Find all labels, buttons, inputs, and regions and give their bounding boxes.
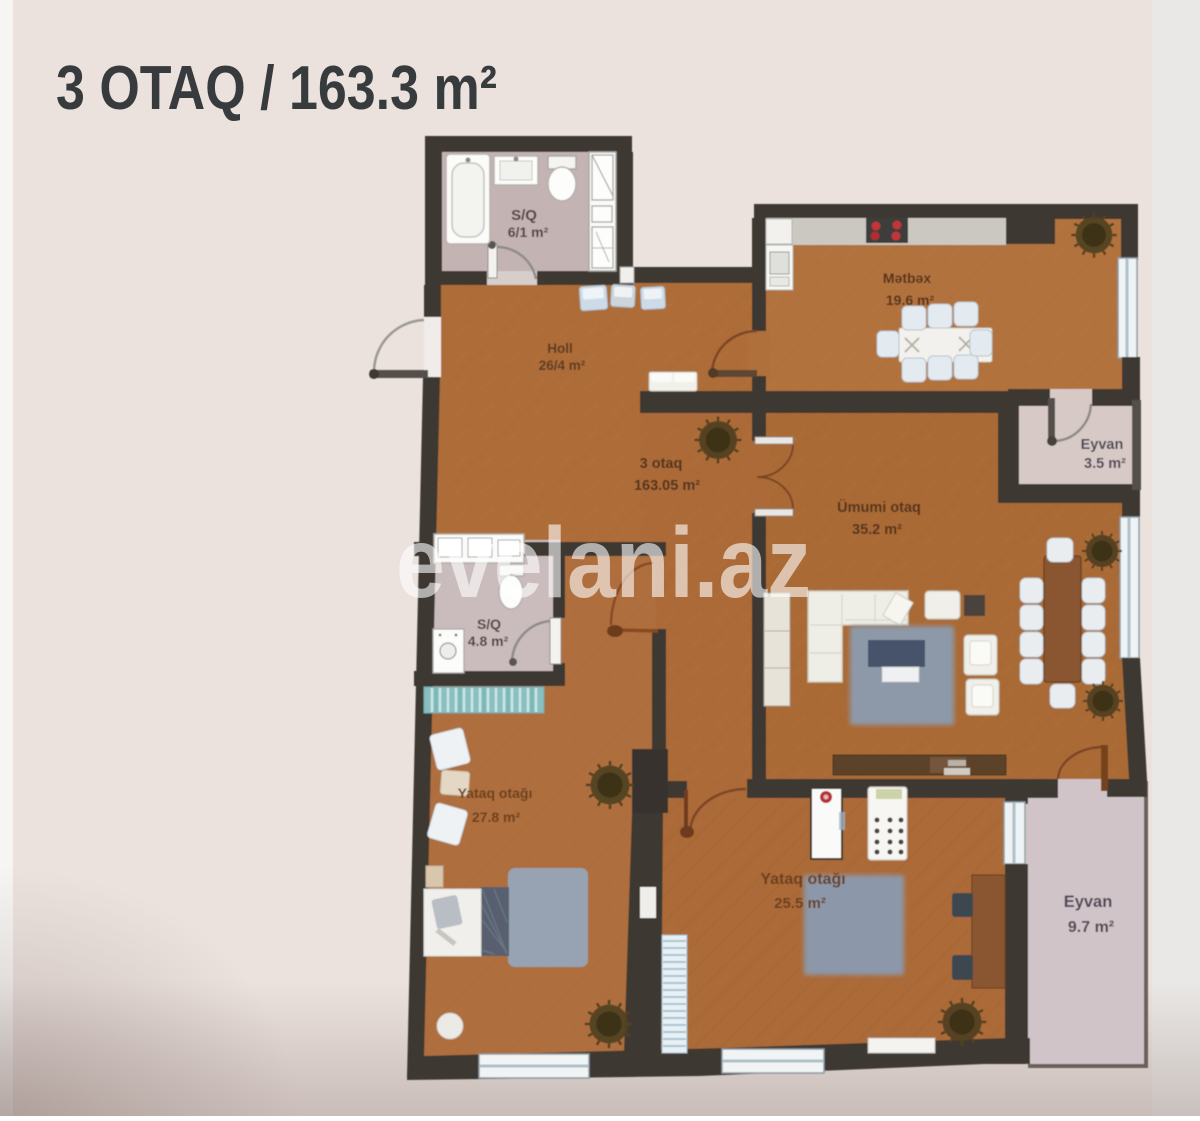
svg-text:Ümumi otaq: Ümumi otaq [837, 499, 921, 516]
svg-text:6/1 m²: 6/1 m² [508, 224, 549, 240]
svg-text:35.2 m²: 35.2 m² [852, 522, 902, 538]
svg-text:evelani.az: evelani.az [396, 507, 811, 619]
svg-text:Holl: Holl [547, 341, 573, 356]
svg-text:26/4 m²: 26/4 m² [539, 358, 586, 373]
svg-text:Mətbəx: Mətbəx [883, 270, 931, 286]
svg-text:3 otaq: 3 otaq [640, 456, 683, 472]
svg-text:9.7 m²: 9.7 m² [1068, 919, 1114, 936]
svg-text:163.05 m²: 163.05 m² [634, 478, 700, 494]
svg-text:3.5 m²: 3.5 m² [1084, 456, 1126, 472]
svg-text:25.5 m²: 25.5 m² [774, 895, 826, 912]
svg-text:Eyvan: Eyvan [1064, 893, 1113, 911]
svg-text:Yataq otağı: Yataq otağı [458, 785, 533, 801]
svg-text:S/Q: S/Q [511, 207, 537, 224]
svg-text:Yataq otağı: Yataq otağı [760, 871, 845, 888]
svg-text:19.6 m²: 19.6 m² [886, 292, 935, 308]
svg-text:4.8 m²: 4.8 m² [468, 633, 509, 649]
svg-text:3 OTAQ / 163.3 m²: 3 OTAQ / 163.3 m² [56, 54, 497, 123]
svg-text:Eyvan: Eyvan [1081, 437, 1124, 453]
svg-text:27.8 m²: 27.8 m² [472, 809, 521, 825]
